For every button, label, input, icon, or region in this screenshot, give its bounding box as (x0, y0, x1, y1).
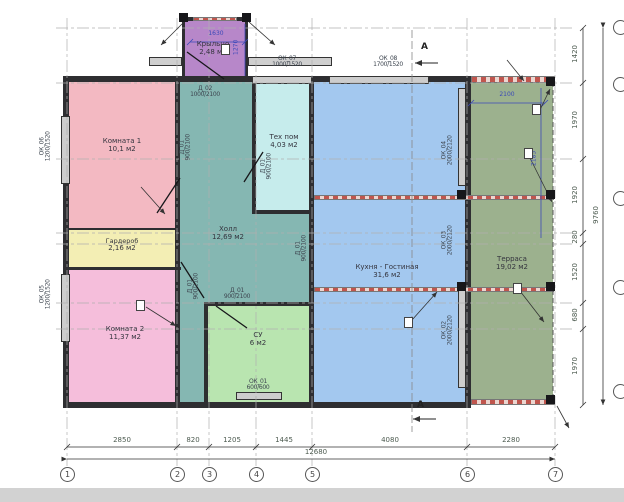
room-label-wardrobe: Гардероб 2,16 м2 (72, 238, 172, 253)
room-label-terrace: Терраса 19,02 м2 (477, 256, 547, 272)
window-ok02-east (458, 290, 466, 388)
wall-wardrobe-bottom (69, 267, 181, 270)
keynote-tag (136, 300, 145, 311)
terrace-width-dim: 2100 (487, 92, 527, 99)
size: 1000/2100 (185, 92, 225, 98)
size: 600/600 (238, 385, 278, 391)
room-label-bedroom1: Комната 1 10,1 м2 (72, 138, 172, 154)
grid-bubble-5: 5 (305, 467, 320, 482)
terrace-top-beam (471, 76, 555, 83)
keynote-tag (513, 283, 522, 294)
size: 1700/1520 (363, 62, 413, 68)
dim-label: 4080 (365, 437, 415, 445)
room-area: 12,69 м2 (193, 234, 263, 242)
bottom-gray-band (0, 488, 624, 502)
column-terrace-4 (546, 395, 555, 404)
room-fill-terrace (471, 82, 553, 402)
size: 900/2100 (302, 230, 308, 266)
window-ok06 (61, 116, 70, 184)
window-mark-ok08: ОК_08 1700/1520 (363, 56, 413, 69)
door-mark-d01-bedroom1: Д_01 900/2100 (180, 129, 193, 165)
porch-height-dim: 1270 (234, 29, 241, 65)
dim-label: 1920 (572, 177, 580, 213)
column-terrace-3 (546, 282, 555, 291)
wall-porch-right (245, 20, 248, 78)
row-bubble (613, 280, 624, 295)
size: 2000/2120 (448, 222, 454, 258)
room-label-techroom: Тех пом 4,03 м2 (254, 134, 314, 150)
porch-beam (193, 17, 237, 21)
dim-total-label: 12680 (291, 449, 341, 457)
grid-bubble-4: 4 (249, 467, 264, 482)
size: 2000/2120 (448, 132, 454, 168)
section-marker-bottom: А (417, 400, 424, 410)
door-mark-d02: Д_02 1000/2100 (185, 86, 225, 99)
room-label-hall: Холл 12,69 м2 (193, 226, 263, 242)
door-mark-d01-bedroom2: Д_01 900/2100 (188, 268, 201, 304)
row-bubble (613, 384, 624, 399)
dim-label: 1445 (259, 437, 309, 445)
window-mark-ok04: ОК_04 2000/2120 (442, 132, 455, 168)
window-ok01 (236, 392, 282, 400)
door-mark-d01-kitchen: Д_01 900/2100 (296, 230, 309, 266)
dim-label: 1970 (572, 348, 580, 384)
dim-label: 1520 (572, 254, 580, 290)
room-area: 6 м2 (228, 340, 288, 348)
size: 900/2100 (217, 294, 257, 300)
window-ok08 (329, 76, 429, 84)
dim-label: 1205 (207, 437, 257, 445)
beam-mid-upper (314, 195, 554, 200)
wall-hall-kitchen (309, 82, 314, 402)
room-area: 10,1 м2 (72, 146, 172, 154)
size: 1200/1520 (46, 276, 52, 312)
room-label-bathroom: СУ 6 м2 (228, 332, 288, 348)
row-bubble (613, 77, 624, 92)
keynote-tag (404, 317, 413, 328)
window-mark-ok02: ОК_02 2000/2120 (442, 312, 455, 348)
dim-total-label: 9760 (593, 197, 601, 233)
column-wall-2 (457, 282, 466, 291)
window-ok07 (252, 76, 312, 84)
floor-plan-drawing: Крыльцо 2,48 м2 Комната 1 10,1 м2 Гардер… (0, 0, 624, 502)
column-wall-1 (457, 190, 466, 199)
grid-bubble-1: 1 (60, 467, 75, 482)
room-label-bedroom2: Комната 2 11,37 м2 (75, 326, 175, 342)
dim-label: 680 (572, 297, 580, 333)
column-terrace-2 (546, 190, 555, 199)
window-mark-ok06: ОК_06 1200/1520 (40, 128, 53, 164)
window-ok05 (61, 274, 70, 342)
grid-bubble-2: 2 (170, 467, 185, 482)
wall-techroom-bottom (252, 210, 314, 214)
column-porch-left (179, 13, 188, 22)
dim-label: 1420 (572, 36, 580, 72)
row-bubble (613, 20, 624, 35)
canopy-left (149, 57, 182, 66)
keynote-tag (532, 104, 541, 115)
room-area: 2,16 м2 (72, 245, 172, 253)
room-area: 11,37 м2 (75, 334, 175, 342)
row-bubble (613, 191, 624, 206)
window-mark-ok07: ОК_07 1000/1520 (262, 56, 312, 69)
dim-label: 2850 (97, 437, 147, 445)
size: 1200/1520 (46, 128, 52, 164)
dim-label: 280 (572, 219, 580, 255)
window-mark-ok01: ОК_01 600/600 (238, 379, 278, 392)
size: 900/2100 (194, 268, 200, 304)
door-mark-d01-bathroom: Д_01 900/2100 (217, 288, 257, 301)
keynote-tag (221, 44, 230, 55)
wall-wardrobe-top (69, 228, 175, 230)
room-area: 19,02 м2 (477, 264, 547, 272)
window-ok04-east (458, 88, 466, 186)
door-mark-d01-techroom: Д_01 900/2100 (261, 148, 274, 184)
window-mark-ok03: ОК_03 2000/2120 (442, 222, 455, 258)
room-label-kitchen: Кухня - Гостиная 31,6 м2 (327, 264, 447, 280)
porch-width-dim: 1630 (196, 31, 236, 38)
size: 2000/2120 (448, 312, 454, 348)
grid-bubble-6: 6 (460, 467, 475, 482)
grid-bubble-3: 3 (202, 467, 217, 482)
dim-label: 1970 (572, 102, 580, 138)
room-area: 31,6 м2 (327, 272, 447, 280)
keynote-tag (524, 148, 533, 159)
wall-bathroom-left (204, 302, 208, 402)
grid-bubble-7: 7 (548, 467, 563, 482)
column-porch-right (242, 13, 251, 22)
size: 900/2100 (186, 129, 192, 165)
section-marker-top: А (421, 42, 428, 52)
size: 900/2100 (267, 148, 273, 184)
window-mark-ok05: ОК_05 1200/1520 (40, 276, 53, 312)
dim-label: 2280 (486, 437, 536, 445)
size: 1000/1520 (262, 62, 312, 68)
wall-bathroom-top (204, 302, 314, 306)
column-terrace-1 (546, 77, 555, 86)
terrace-bottom-beam (471, 399, 555, 405)
